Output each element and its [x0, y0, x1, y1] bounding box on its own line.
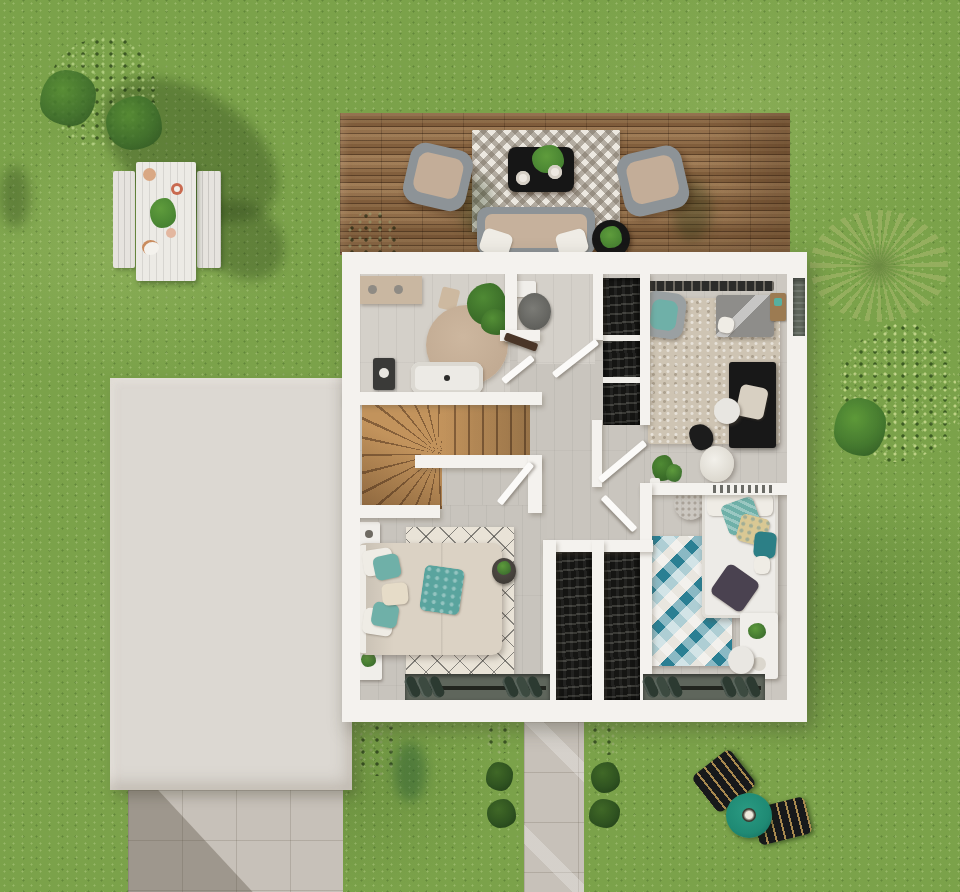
wall-stairs-bottom — [415, 455, 540, 468]
small-pillow — [754, 556, 770, 574]
wall-south — [342, 700, 807, 722]
sofa — [477, 207, 595, 255]
purple-pillow — [709, 562, 761, 613]
plant-side-table — [492, 558, 516, 584]
plate — [142, 240, 159, 255]
side-table-plant — [600, 226, 622, 248]
wardrobe-shelf — [603, 335, 640, 341]
picnic-set — [108, 158, 228, 284]
driveway — [128, 790, 343, 892]
guest-armchair-cushion — [649, 298, 679, 331]
bench-right — [197, 171, 221, 268]
lamp — [365, 530, 373, 538]
kids-desk-chair — [728, 646, 754, 674]
sink-basin — [394, 285, 403, 294]
sink-basin — [368, 285, 377, 294]
closet-column-2 — [604, 552, 640, 700]
stairs-straight — [442, 404, 530, 457]
washing-machine — [373, 358, 395, 390]
toilet-bowl — [518, 293, 551, 330]
sliding-window-master — [405, 674, 550, 700]
palm-plant — [810, 210, 948, 322]
wall-kids-west — [640, 483, 652, 702]
landing-pouf — [700, 446, 734, 482]
tree-canopy-lobe — [106, 96, 162, 150]
plate — [516, 171, 530, 185]
path-bush — [589, 799, 620, 828]
dark-teal-cushion — [753, 531, 777, 559]
wall-wc-right — [593, 270, 603, 340]
guest-nightstand — [770, 293, 786, 321]
wall-west — [342, 252, 360, 722]
guest-desk-chair — [714, 398, 740, 424]
path-bush — [484, 724, 514, 754]
bush-canopy-lobe — [834, 398, 886, 456]
wall-north — [342, 252, 807, 274]
house — [342, 252, 807, 722]
table-plant — [150, 198, 176, 228]
clothes-rail — [648, 281, 774, 291]
cup — [166, 228, 176, 238]
tree-top-left — [40, 30, 166, 156]
teal-cushion — [372, 553, 402, 582]
bathtub-drain — [444, 375, 450, 381]
cream-cushion — [381, 582, 409, 606]
wall-wardrobe-right — [640, 272, 650, 425]
wardrobe-shelf — [603, 377, 640, 383]
side-table-plant — [497, 561, 511, 575]
bathtub — [411, 362, 483, 394]
garden-path — [524, 722, 584, 892]
grass-dark-patch — [0, 166, 30, 228]
parasol-pole — [742, 808, 756, 822]
coffee-table — [508, 147, 574, 192]
plate — [171, 183, 183, 195]
desk-item — [752, 657, 766, 671]
nightstand-item — [774, 298, 782, 306]
bench-left — [113, 171, 135, 268]
bathroom-vanity — [360, 276, 422, 304]
teal-throw-pillow — [419, 564, 465, 615]
sliding-window-kids — [643, 674, 765, 700]
terrace-deck — [340, 113, 790, 255]
tree-canopy-lobe — [40, 70, 96, 126]
bush-right — [834, 318, 960, 474]
closet-column-1 — [556, 552, 592, 700]
plate — [143, 168, 156, 181]
floor-plan-render — [0, 0, 960, 892]
parasol-table — [726, 793, 772, 838]
dark-grass-patch — [394, 742, 426, 802]
path-light-streaks — [524, 722, 584, 892]
path-bush — [588, 724, 622, 755]
path-bush — [487, 799, 516, 828]
window-east-wall — [793, 278, 805, 336]
garage-roof — [110, 378, 352, 790]
plate — [548, 165, 562, 179]
kids-bed — [702, 490, 778, 618]
window-sill-track — [713, 485, 775, 493]
path-bush — [591, 762, 620, 793]
path-bush — [486, 762, 513, 791]
desk-plant — [748, 623, 766, 639]
wardrobe-guest — [603, 278, 640, 425]
driveway-shadow — [128, 790, 343, 892]
wall-stairs-top — [342, 392, 542, 405]
landing-plant — [666, 464, 682, 482]
desk-cushion — [735, 383, 769, 420]
master-bed — [356, 543, 502, 655]
guest-bed-pillow — [717, 316, 736, 335]
guest-bed — [716, 295, 774, 337]
washer-door — [379, 368, 389, 378]
wall-closet-mid — [592, 540, 604, 702]
